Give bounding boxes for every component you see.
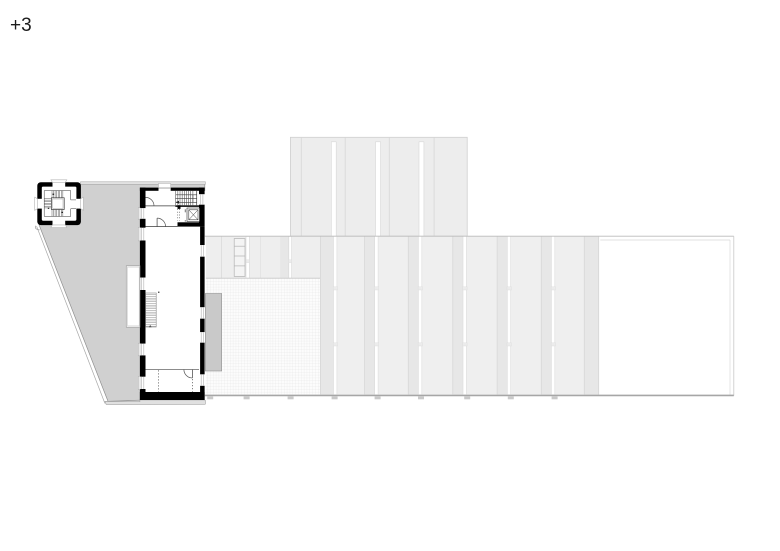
- svg-text:+3: +3: [10, 15, 32, 36]
